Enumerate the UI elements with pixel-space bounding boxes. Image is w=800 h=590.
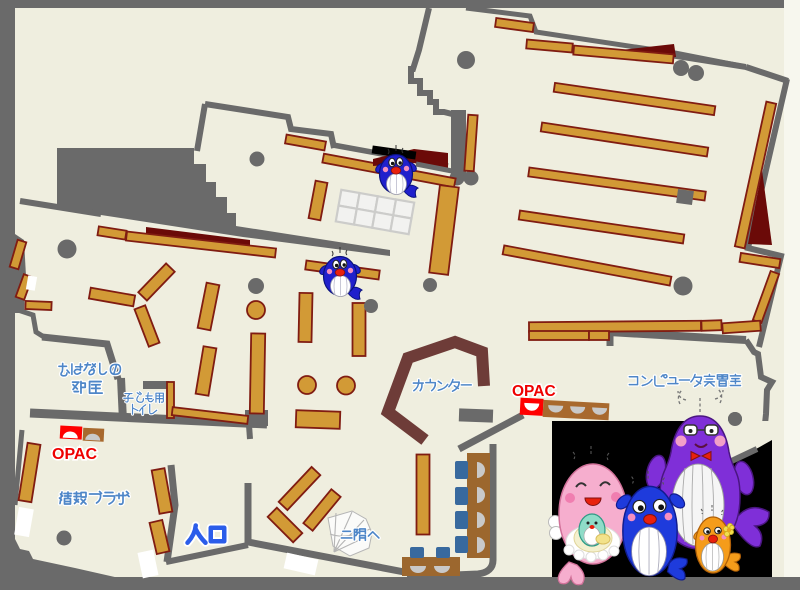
svg-text:OPAC: OPAC bbox=[52, 446, 97, 463]
svg-text:OPAC: OPAC bbox=[512, 383, 556, 400]
